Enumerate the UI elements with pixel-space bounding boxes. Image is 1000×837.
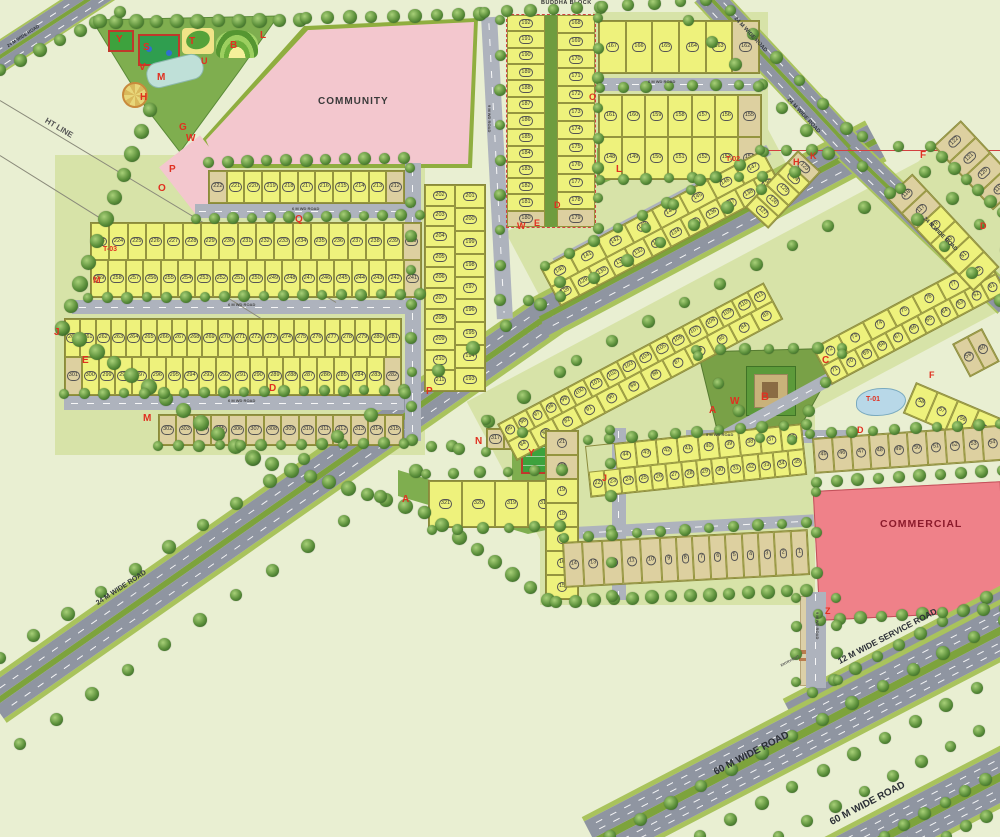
tree [364, 408, 378, 422]
tree [973, 419, 985, 431]
plot-number: 276 [310, 333, 323, 342]
plot-block-buddha: 1921911901891881871861851841831821811801… [506, 14, 596, 228]
tree [847, 747, 861, 761]
block-letter-b: B [230, 40, 237, 51]
block-letter-a: A [402, 494, 409, 505]
tree [854, 611, 867, 624]
plot-number: 234 [295, 237, 308, 246]
tree [180, 291, 192, 303]
tree [791, 593, 801, 603]
plot-number: 14 [569, 560, 580, 570]
tree [193, 613, 207, 627]
plot: 234 [293, 223, 311, 260]
tree [595, 83, 605, 93]
tree [703, 588, 717, 602]
commercial-label: COMMERCIAL [880, 518, 962, 530]
tree [893, 141, 904, 152]
plot: 270 [218, 319, 233, 357]
tree [85, 687, 99, 701]
tree [831, 620, 842, 631]
tree [592, 162, 604, 174]
plot-number: 177 [569, 178, 582, 187]
plot-number: 87 [671, 356, 684, 369]
plot-number: 215 [335, 182, 348, 191]
tree [755, 433, 765, 443]
plot-number: 204 [433, 232, 446, 241]
plot-number: 104 [638, 350, 654, 364]
plot-number: 106 [671, 333, 687, 347]
plot-number: 201 [463, 192, 476, 201]
plot-number: 30 [715, 465, 726, 475]
tree [415, 210, 425, 220]
tree [948, 162, 961, 175]
plot-number: 28 [684, 469, 695, 479]
tree [122, 664, 134, 676]
tree [107, 190, 122, 205]
plot-number: 199 [463, 238, 476, 247]
plot: 13 [582, 541, 604, 586]
tree [826, 427, 837, 438]
plot-number: 58 [914, 396, 927, 408]
tree [341, 481, 356, 496]
plot: 1 [790, 530, 809, 575]
plot-number: 206 [433, 273, 446, 282]
plot-number: 288 [285, 371, 298, 380]
plot-number: 42 [662, 446, 673, 456]
tree [200, 292, 210, 302]
tree [343, 10, 357, 24]
tree [583, 435, 593, 445]
tree [74, 24, 87, 37]
plot-row-colL: 202203204205206207208209210211 [425, 185, 455, 391]
tree [379, 385, 390, 396]
tree [395, 289, 406, 300]
plot-number: 207 [433, 294, 446, 303]
tree [218, 386, 230, 398]
plot-row-rowA: 222221220219218217216215214213212 [209, 171, 404, 203]
block-letter-y: Y [528, 448, 535, 459]
plot-number: 122 [947, 134, 963, 150]
plot-number: 23 [608, 477, 619, 487]
plot: 263 [111, 319, 126, 357]
road-label-r6-1: 6 M WD ROAD [292, 206, 319, 211]
plot-number: 232 [259, 237, 272, 246]
plot: 171 [557, 68, 595, 86]
plot-number: 264 [127, 333, 140, 342]
plot-number: 44 [620, 450, 631, 460]
plot-number: 90 [605, 392, 618, 405]
tree [756, 184, 767, 195]
tree [263, 474, 277, 488]
plot-number: 157 [697, 111, 710, 120]
tree [593, 43, 604, 54]
tree [583, 531, 594, 542]
tree [255, 439, 267, 451]
tree [706, 36, 718, 48]
tree [59, 389, 69, 399]
tree [961, 174, 972, 185]
block-letter-o: O [158, 183, 166, 194]
tree [849, 662, 862, 675]
plot: 231 [238, 223, 256, 260]
tree [868, 426, 878, 436]
plot-number: 159 [650, 111, 663, 120]
plot-number: 284 [352, 371, 365, 380]
plot-number: 178 [569, 196, 582, 205]
plot-number: 34 [776, 459, 787, 469]
plot-number: 43 [641, 448, 652, 458]
road-label-r6-2: 6 M WD ROAD [228, 302, 255, 307]
plot-number: 169 [569, 37, 582, 46]
tree [124, 146, 140, 162]
plot-number: 179 [569, 214, 582, 223]
block-letter-m: M [93, 275, 101, 285]
plot: 214 [351, 171, 369, 203]
block-letter-d: D [554, 200, 561, 210]
plot-number: 241 [406, 274, 419, 283]
tree [83, 293, 93, 303]
plot-number: 226 [149, 237, 162, 246]
block-letter-y: Y [116, 34, 123, 45]
plot: 225 [128, 223, 146, 260]
plot-number: 47 [856, 448, 867, 458]
tree [817, 764, 830, 777]
plot-number: 121 [962, 150, 978, 166]
tree [593, 13, 603, 23]
plot-number: 216 [318, 182, 331, 191]
tree [495, 120, 505, 130]
plot: 21 [546, 431, 578, 455]
plot-number: 181 [519, 198, 532, 207]
tree [770, 51, 783, 64]
tree [494, 84, 506, 96]
tree [569, 595, 582, 608]
plot-number: 120 [976, 165, 992, 181]
tree [378, 437, 390, 449]
tree [670, 428, 681, 439]
plot: 274 [279, 319, 294, 357]
plot-number: 212 [389, 182, 402, 191]
tree [427, 525, 437, 535]
tree [791, 621, 802, 632]
tree [431, 9, 443, 21]
plot: 52 [944, 428, 965, 463]
tree [984, 195, 997, 208]
tree [831, 475, 843, 487]
tree [524, 4, 537, 17]
plot: 226 [146, 223, 164, 260]
tree [358, 438, 369, 449]
plot: 35 [788, 449, 806, 475]
tree [801, 815, 813, 827]
tree [554, 366, 566, 378]
plot: 204 [425, 226, 455, 247]
plot: 215 [333, 171, 351, 203]
plot-number: 50 [912, 444, 923, 454]
tree [479, 7, 490, 18]
plot-number: 40 [703, 441, 714, 451]
plot: 174 [557, 121, 595, 139]
tree [259, 386, 270, 397]
plot-number: 245 [336, 274, 349, 283]
tree [322, 475, 336, 489]
tree [588, 272, 600, 284]
tree [466, 341, 480, 355]
tree [54, 34, 66, 46]
tree [781, 145, 792, 156]
plot-number: 227 [167, 237, 180, 246]
plot-number: 244 [354, 274, 367, 283]
tree [604, 830, 616, 837]
pond-marker-t-03: T-03 [103, 246, 117, 253]
plot: 178 [557, 192, 595, 210]
block-letter-z: Z [825, 606, 831, 616]
tree [33, 43, 47, 57]
tree [212, 14, 225, 27]
tree [203, 157, 214, 168]
tree [898, 819, 910, 831]
plot-number: 75 [898, 305, 911, 318]
block-letter-d: D [269, 383, 276, 394]
tree [812, 342, 824, 354]
plot-number: 172 [569, 90, 582, 99]
plot: 199 [455, 231, 485, 254]
plot-number: 183 [519, 165, 532, 174]
plot-number: 61 [986, 281, 999, 294]
tree [686, 185, 696, 195]
plot-number: 98 [545, 401, 558, 414]
block-letter-k: K [810, 151, 817, 161]
plot: 51 [926, 430, 947, 465]
tree [488, 555, 502, 569]
block-letter-n: N [475, 436, 482, 447]
tree [873, 473, 884, 484]
plot: 173 [557, 103, 595, 121]
tree [235, 440, 246, 451]
tree [971, 682, 983, 694]
plot-number: 173 [569, 108, 582, 117]
tree [161, 292, 172, 303]
plot-number: 300 [84, 371, 97, 380]
tree [889, 424, 900, 435]
tree [807, 687, 818, 698]
plot: 179 [557, 209, 595, 227]
plot: 273 [263, 319, 278, 357]
plot-number: 24 [623, 475, 634, 485]
tree [548, 4, 559, 15]
plot-number: 294 [184, 371, 197, 380]
plot-number: 289 [268, 371, 281, 380]
tree [143, 103, 157, 117]
tree [909, 715, 922, 728]
plot-number: 103 [621, 359, 637, 373]
plot-number: 66 [907, 322, 920, 335]
plot-number: 174 [569, 125, 582, 134]
plot: 272 [248, 319, 263, 357]
plot: 184 [507, 146, 545, 162]
plot-number: 7 [698, 553, 706, 562]
plot: 213 [369, 171, 387, 203]
plot-number: 111 [753, 290, 768, 304]
road-label-r9-1: 9 M WD ROAD [706, 432, 733, 437]
plot-number: 295 [168, 371, 181, 380]
tree [524, 581, 537, 594]
plot-number: 254 [180, 274, 193, 283]
tree [724, 813, 737, 826]
tree [114, 6, 126, 18]
tree [365, 11, 377, 23]
tree [642, 315, 655, 328]
tree [179, 388, 189, 398]
tree [634, 813, 647, 826]
plot-number: 9 [665, 555, 673, 564]
plot: 203 [425, 206, 455, 227]
tree [495, 15, 505, 25]
tree [734, 80, 744, 90]
tree [554, 520, 566, 532]
tree [219, 291, 230, 302]
plot-number: 320 [472, 499, 485, 508]
plot: 205 [425, 247, 455, 268]
plot-number: 11 [627, 557, 637, 567]
plot-number: 198 [463, 261, 476, 270]
plot-number: 291 [235, 371, 248, 380]
plot-number: 310 [301, 425, 314, 434]
plot: 264 [126, 319, 141, 357]
plot-number: 4 [747, 550, 755, 559]
plot: 181 [507, 194, 545, 210]
plot-number: 256 [145, 274, 158, 283]
site-plan-map: COMMUNITY BUDDHA BLOCK COMMERCIAL X 22 [0, 0, 1000, 837]
plot-number: 252 [215, 274, 228, 283]
tree [266, 564, 279, 577]
tree [14, 54, 27, 67]
plot: 49 [888, 432, 909, 467]
plot: 265 [141, 319, 156, 357]
tree [230, 589, 242, 601]
plot-number: 196 [463, 306, 476, 315]
tree [359, 211, 369, 221]
tree [495, 155, 506, 166]
tree [683, 15, 694, 26]
plot-number: 95 [503, 423, 516, 436]
plot: 232 [256, 223, 274, 260]
plot: 319 [495, 481, 528, 527]
plot: 40 [697, 433, 720, 460]
block-letter-f: F [920, 150, 926, 161]
tree [688, 219, 700, 231]
tree [919, 166, 931, 178]
plot-number: 48 [875, 446, 886, 456]
plot: 197 [455, 277, 485, 300]
plot: 155 [738, 95, 761, 137]
pond-marker-t-02: T-02 [726, 156, 740, 163]
plot: 224 [109, 223, 127, 260]
tree [452, 524, 463, 535]
plot-number: 319 [505, 499, 518, 508]
plot-row-budL: 192191190189188187186185184183182181180 [507, 15, 545, 227]
plot-number: 197 [463, 283, 476, 292]
plot-number: 19 [557, 486, 567, 495]
tree [597, 1, 608, 12]
tree [199, 387, 210, 398]
plot: 280 [370, 319, 385, 357]
tree [801, 419, 812, 430]
tree [939, 698, 953, 712]
block-letter-j: J [54, 327, 60, 338]
plot-number: 71 [829, 364, 842, 377]
tree [779, 421, 789, 431]
plot-number: 27 [669, 470, 680, 480]
block-letter-q: Q [295, 214, 303, 225]
tree [761, 585, 775, 599]
tree [319, 385, 330, 396]
tree [150, 15, 163, 28]
tree [945, 741, 956, 752]
plot: 189 [507, 64, 545, 80]
tree [641, 223, 651, 233]
tree [915, 755, 928, 768]
plot-number: 202 [433, 191, 446, 200]
plot-number: 33 [761, 461, 772, 471]
tree [338, 385, 350, 397]
plot-number: 248 [284, 274, 297, 283]
plot-number: 67 [892, 331, 905, 344]
plot-number: 77 [947, 279, 960, 292]
tree [729, 58, 742, 71]
tree [89, 344, 105, 360]
community-label: COMMUNITY [318, 96, 389, 107]
tree [695, 780, 707, 792]
tree [979, 773, 992, 786]
plot-number: 278 [341, 333, 354, 342]
plot-number: 136 [704, 206, 720, 220]
tree [27, 629, 40, 642]
plot: 159 [645, 95, 668, 137]
plot-number: 185 [519, 133, 532, 142]
tree [753, 81, 764, 92]
plot-number: 29 [700, 467, 711, 477]
tree [273, 14, 286, 27]
plot-number: 151 [673, 153, 686, 162]
tree [406, 265, 416, 275]
tree [876, 611, 887, 622]
plot-number: 225 [130, 237, 143, 246]
t-lawn [182, 28, 214, 54]
plot-number: 200 [463, 215, 476, 224]
block-letter-f: F [929, 370, 935, 380]
plot: 170 [557, 50, 595, 68]
plot-number: 220 [247, 182, 260, 191]
plot-number: 175 [569, 143, 582, 152]
tree [98, 211, 114, 227]
plot-number: 141 [580, 249, 596, 263]
plot: 165 [652, 21, 679, 73]
tree [559, 533, 569, 543]
tree [714, 278, 726, 290]
tree [937, 607, 948, 618]
tree [787, 240, 798, 251]
tree [421, 469, 431, 479]
plot-number: 101 [588, 376, 604, 390]
tree [14, 738, 26, 750]
plot-number: 280 [371, 333, 384, 342]
tree [517, 427, 528, 438]
tree [605, 425, 615, 435]
plot: 202 [425, 185, 455, 206]
plot: 166 [626, 21, 653, 73]
plot-number: 257 [128, 274, 141, 283]
